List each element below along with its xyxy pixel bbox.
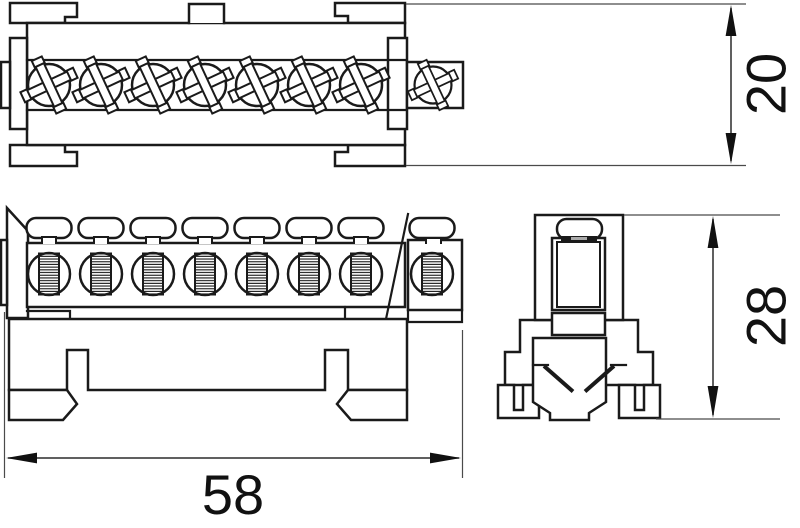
arrowhead-left <box>6 453 37 464</box>
slot-notch <box>146 237 160 244</box>
terminal-port <box>411 253 453 295</box>
mount-tab-top-left <box>10 3 77 23</box>
din-hook-foot-right <box>619 385 660 418</box>
mount-tab-top-right <box>335 3 405 23</box>
wire-entry-slot <box>131 218 176 238</box>
din-clip-foot-left <box>9 390 77 420</box>
slot-notch <box>198 237 212 244</box>
end-cap-left <box>10 38 27 129</box>
mount-tab-bottom-left <box>10 145 77 166</box>
wire-entry-slot <box>287 218 332 238</box>
din-rail-end-left-front <box>1 240 7 305</box>
clamp-nut <box>552 313 605 335</box>
dimension-label-width: 58 <box>202 463 264 526</box>
slot-notch <box>250 237 264 244</box>
arrowhead-up <box>708 216 719 248</box>
slot-notch <box>302 237 316 244</box>
dimension-label-height: 20 <box>735 53 798 115</box>
wire-entry-slot <box>79 218 124 238</box>
terminal-port <box>132 253 174 295</box>
arrowhead-down <box>726 133 737 164</box>
side-terminal-skirt <box>408 310 462 322</box>
wire-entry-slot <box>27 218 72 238</box>
wire-entry-slot <box>410 218 455 238</box>
din-clip-foot-right <box>337 390 407 420</box>
wire-entry-slot <box>235 218 280 238</box>
drawing-canvas: 20 <box>0 0 800 528</box>
top-view <box>1 3 467 166</box>
dimension-height-20: 20 <box>406 4 798 166</box>
end-cap-right <box>388 38 407 129</box>
arrowhead-down <box>708 386 719 418</box>
front-view <box>1 208 462 420</box>
side-view <box>498 215 660 420</box>
terminal-port <box>184 253 226 295</box>
end-cap-left-front <box>7 208 28 318</box>
clamp-cage-inner <box>557 242 600 307</box>
screw-slot-highlight <box>571 237 587 240</box>
slot-notch <box>426 238 441 244</box>
din-rail-end-left <box>1 62 10 108</box>
slot-notch <box>94 237 108 244</box>
technical-drawing-terminal-block: 20 <box>0 0 800 528</box>
terminal-port <box>340 253 382 295</box>
wire-entry-slot <box>183 218 228 238</box>
terminal-port <box>236 253 278 295</box>
base-housing <box>9 319 407 390</box>
arrowhead-up <box>726 5 737 36</box>
mount-tab-bottom-right <box>335 145 405 166</box>
terminal-port <box>80 253 122 295</box>
slot-notch <box>354 237 368 244</box>
terminal-port <box>28 253 70 295</box>
slot-notch <box>42 237 56 244</box>
arrowhead-right <box>430 453 461 464</box>
wire-entry-slot <box>339 218 384 238</box>
terminal-port <box>288 253 330 295</box>
top-edge-lug <box>189 4 224 23</box>
center-clip-block <box>533 338 606 420</box>
dimension-label-depth: 28 <box>735 285 798 347</box>
